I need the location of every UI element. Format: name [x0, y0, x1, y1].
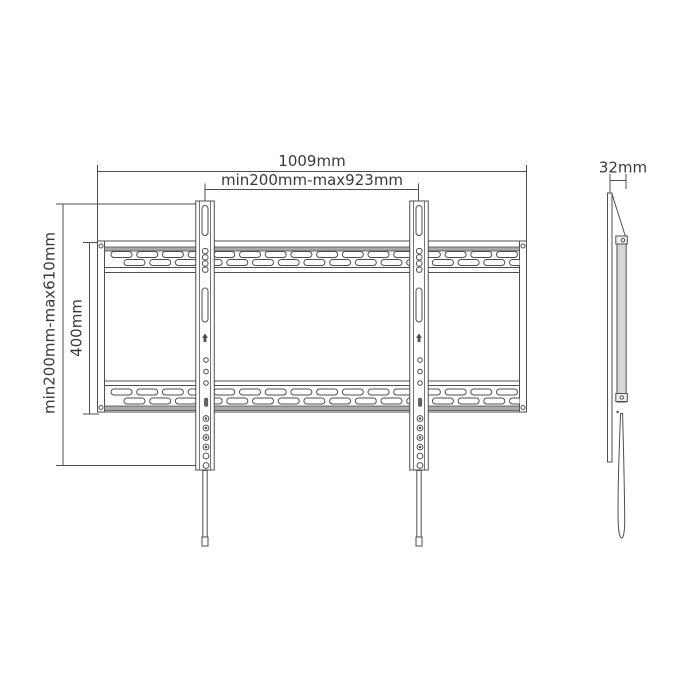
depth-label: 32mm	[599, 161, 647, 176]
drawing-svg	[0, 0, 700, 700]
side-view	[608, 174, 628, 538]
mount-height-range-label: min200mm-max610mm	[43, 232, 58, 414]
left-vertical-bracket	[196, 201, 215, 546]
right-vertical-bracket	[410, 201, 429, 546]
wall-mount-technical-drawing: 1009mm min200mm-max923mm min200mm-max610…	[0, 0, 700, 700]
wall-plate	[98, 241, 527, 412]
front-view	[98, 201, 557, 546]
mount-width-range-label: min200mm-max923mm	[97, 173, 527, 188]
overall-width-label: 1009mm	[97, 154, 527, 169]
plate-height-label: 400mm	[70, 299, 85, 357]
